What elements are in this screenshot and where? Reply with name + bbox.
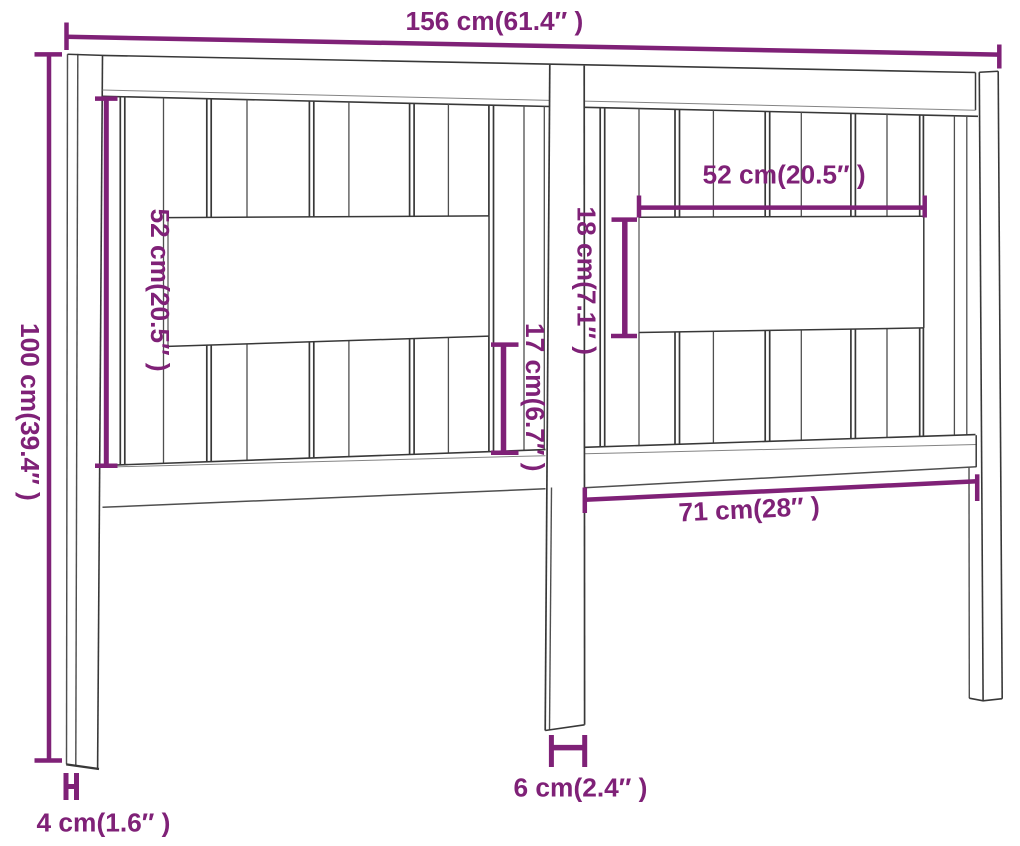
svg-text:52 cm(20.5″ ): 52 cm(20.5″ )	[703, 160, 866, 190]
svg-text:17 cm(6.7″ ): 17 cm(6.7″ )	[520, 323, 550, 472]
svg-text:156 cm(61.4″ ): 156 cm(61.4″ )	[406, 6, 584, 36]
svg-text:4 cm(1.6″ ): 4 cm(1.6″ )	[37, 808, 171, 838]
svg-text:100 cm(39.4″ ): 100 cm(39.4″ )	[15, 323, 45, 501]
svg-text:6 cm(2.4″ ): 6 cm(2.4″ )	[514, 773, 648, 803]
svg-text:52 cm(20.5″ ): 52 cm(20.5″ )	[145, 209, 175, 372]
svg-text:18 cm(7.1″ ): 18 cm(7.1″ )	[572, 207, 602, 356]
